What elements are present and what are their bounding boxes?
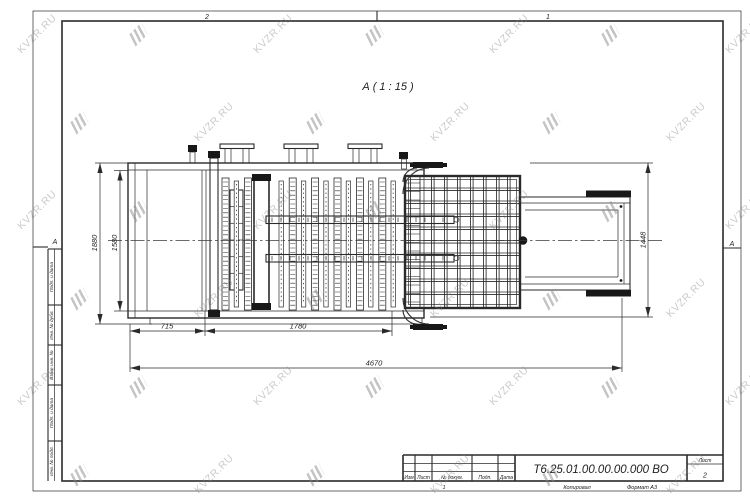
extension-frame — [519, 191, 631, 297]
central-guide-bar — [252, 174, 271, 310]
col-doc: № докум. — [441, 475, 463, 481]
side-col-label-1: Подп. и дата — [49, 262, 55, 292]
sheet-label: Лист — [698, 458, 712, 464]
fold-mark-left: А — [52, 239, 58, 246]
view-label: А ( 1 : 15 ) — [361, 81, 414, 93]
title-block: Изм Лист № докум. Подп. Дата Т6.25.01.00… — [403, 455, 723, 491]
side-col-label-4: Подп. и дата — [49, 398, 55, 428]
col-list: Лист — [416, 475, 430, 481]
dim-height-inner: 1580 — [110, 234, 119, 252]
sheet-number: 2 — [702, 473, 707, 480]
side-col-label-2: Инв. № дубл. — [49, 310, 55, 340]
col-izm: Изм — [404, 475, 414, 481]
side-column: Подп. и дата Инв. № дубл. Взам. инв. № П… — [48, 249, 62, 481]
col-podp: Подп. — [478, 475, 491, 481]
grid-basket — [405, 176, 520, 308]
fold-mark-right: А — [729, 241, 735, 248]
drawing-sheet: 2 1 А А Подп. и дата Инв. № дубл. Взам. … — [0, 0, 750, 500]
zone-top-right: 1 — [546, 14, 550, 21]
side-col-label-5: Инв. № подл. — [49, 446, 55, 476]
zone-top-left: 2 — [204, 14, 209, 21]
format-label: Формат А3 — [627, 485, 658, 491]
col-data: Дата — [499, 475, 513, 481]
dim-width-total: 4670 — [366, 359, 384, 368]
grate-strips — [222, 178, 395, 310]
machine-drawing — [108, 144, 662, 330]
dim-height-right: 1448 — [639, 231, 648, 249]
side-col-label-3: Взам. инв. № — [49, 350, 55, 380]
dim-width-mid: 1780 — [290, 322, 308, 331]
zone-bottom: 1 — [442, 485, 445, 491]
dim-width-left: 715 — [161, 322, 174, 331]
copied-label: Копировал — [563, 485, 590, 491]
dim-height-outer: 1880 — [90, 234, 99, 252]
drawing-canvas: 2 1 А А Подп. и дата Инв. № дубл. Взам. … — [0, 0, 750, 500]
doc-number: Т6.25.01.00.00.00.000 ВО — [533, 464, 668, 476]
